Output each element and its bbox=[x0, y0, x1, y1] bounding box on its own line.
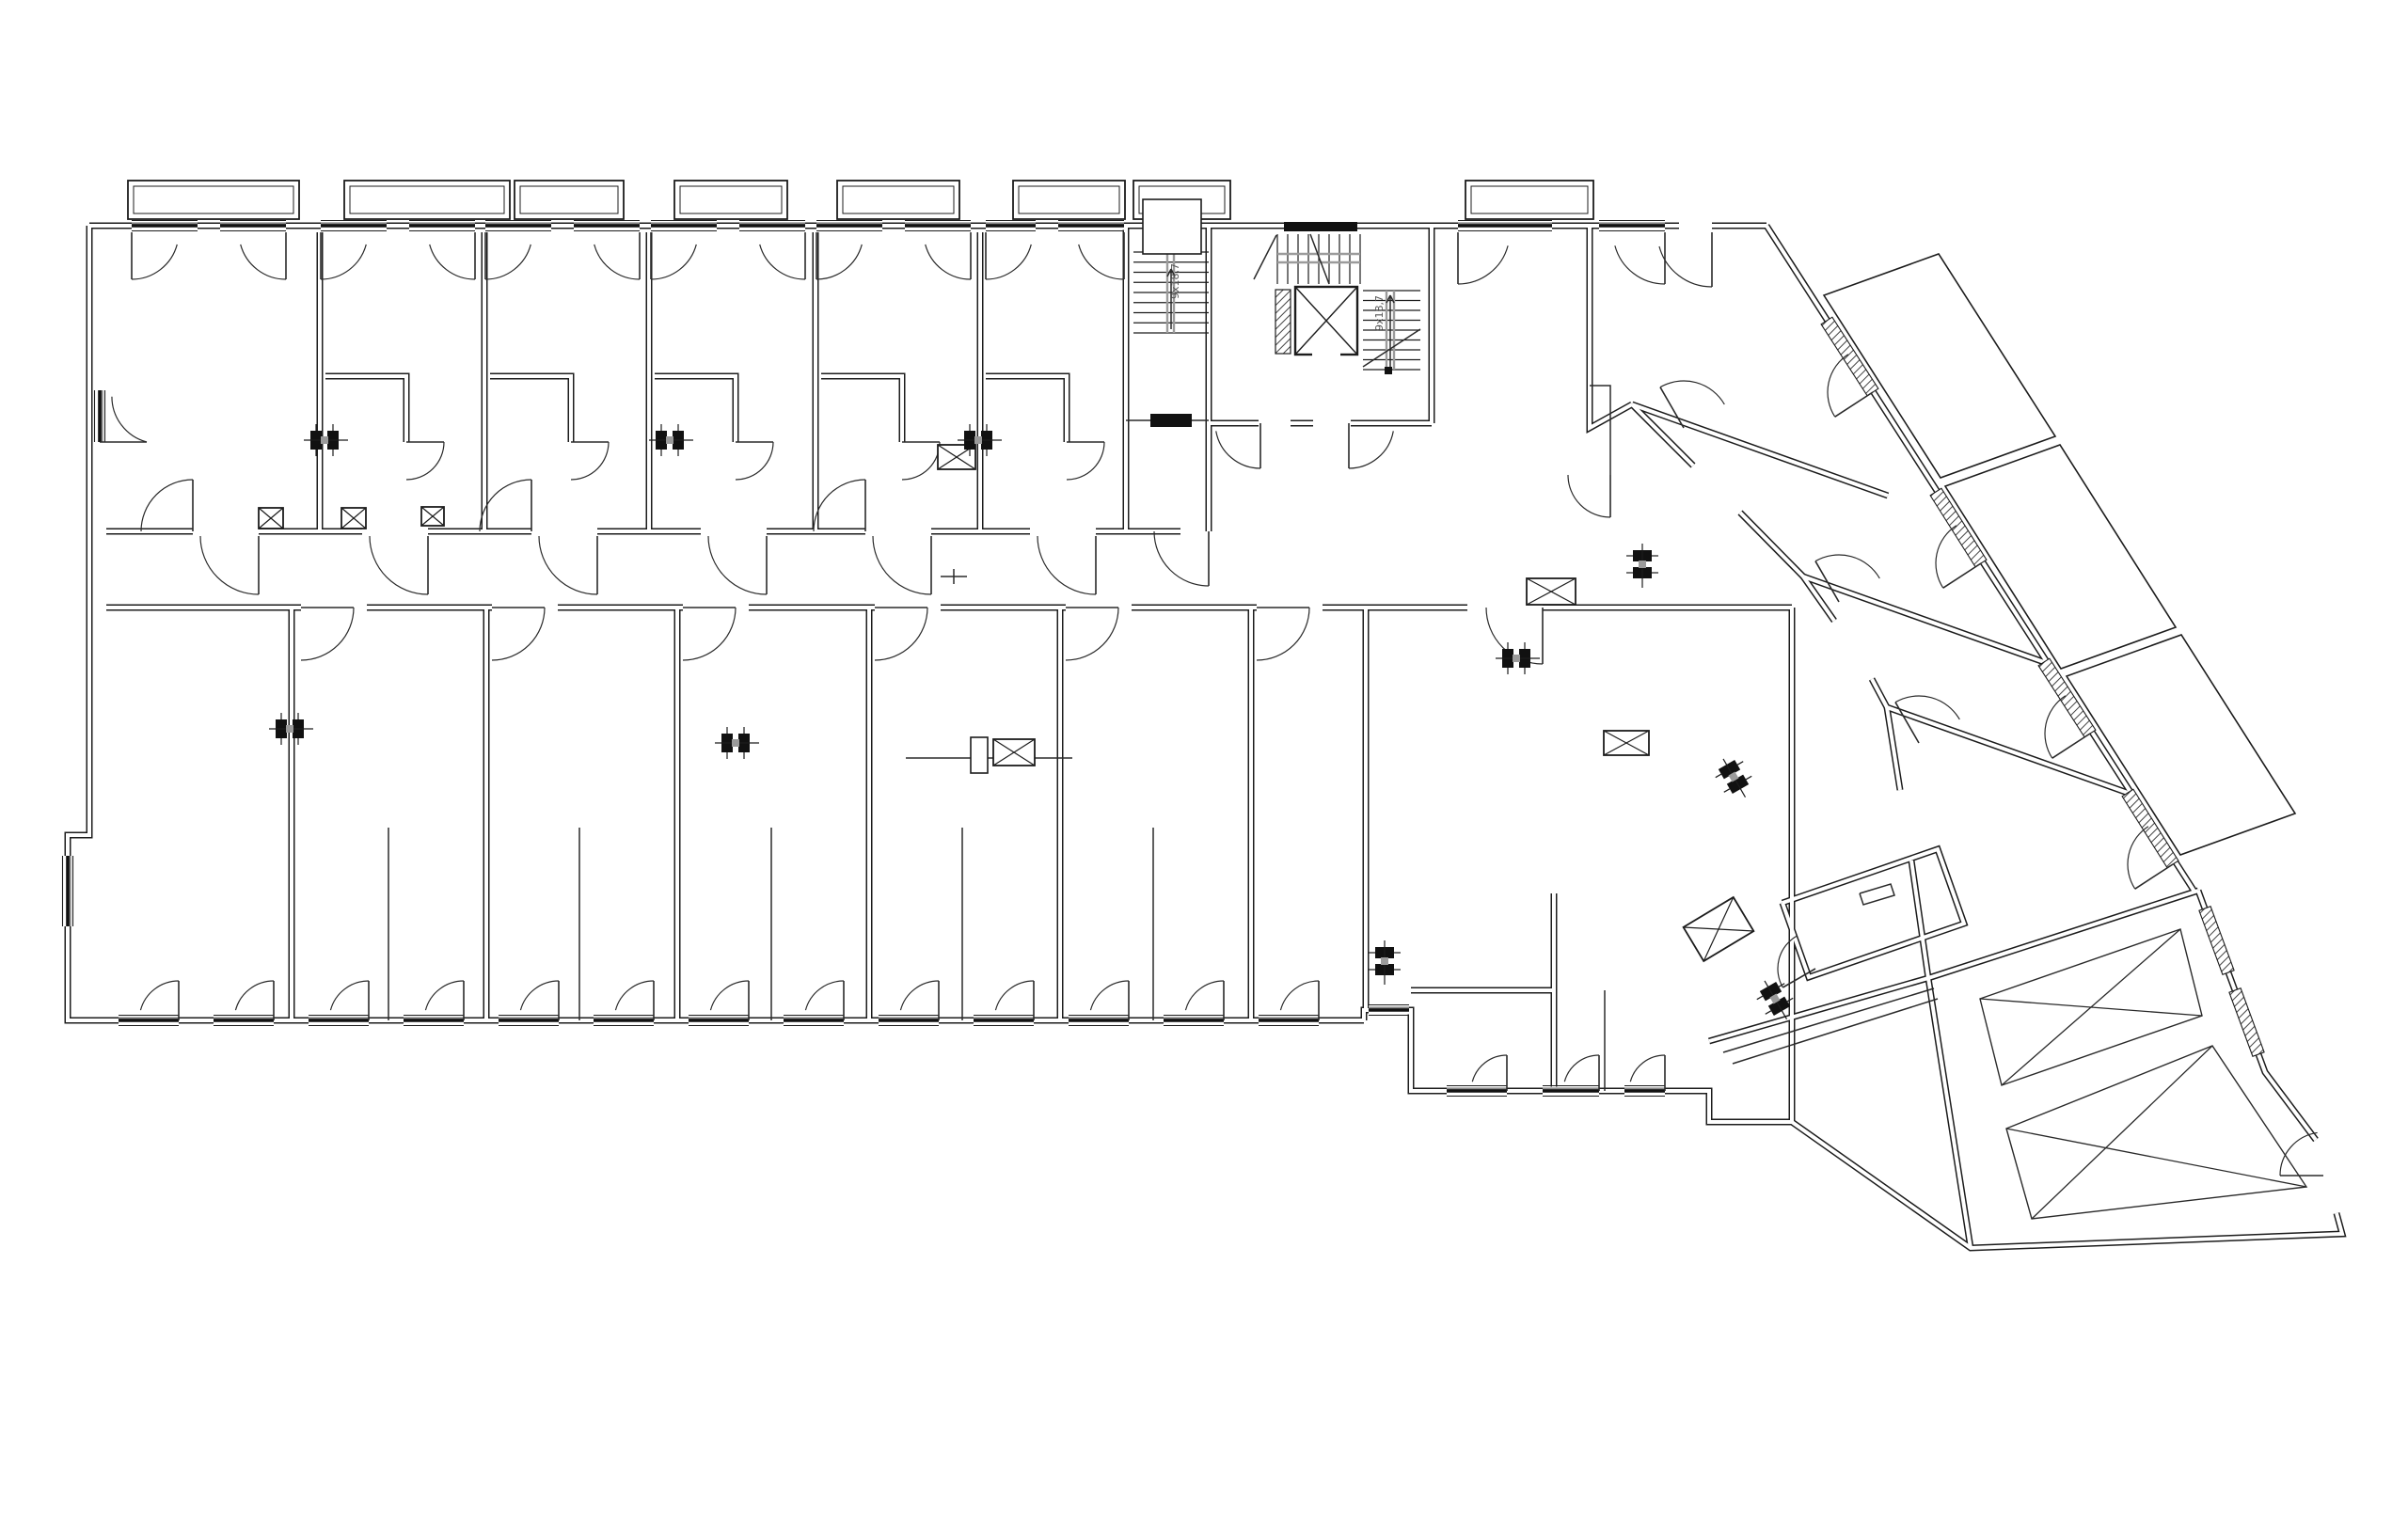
stair-dimension-label: 9x18,7 bbox=[1373, 295, 1386, 331]
vent-shaft bbox=[259, 508, 283, 529]
elevator-shaft bbox=[1275, 287, 1357, 355]
solid-door-panel bbox=[1284, 222, 1357, 231]
window bbox=[816, 221, 882, 231]
window bbox=[95, 390, 105, 442]
window bbox=[651, 221, 717, 231]
window bbox=[1058, 221, 1124, 231]
window bbox=[1447, 1086, 1507, 1097]
window bbox=[879, 1016, 939, 1026]
column bbox=[971, 737, 988, 773]
window bbox=[1624, 1086, 1665, 1097]
window bbox=[905, 221, 971, 231]
window bbox=[132, 221, 198, 231]
vent-shaft bbox=[341, 508, 366, 529]
floor-plan-page: 9x18,79x18,7 bbox=[0, 0, 2408, 1532]
window bbox=[409, 221, 475, 231]
window bbox=[739, 221, 805, 231]
window bbox=[1543, 1086, 1599, 1097]
window bbox=[119, 1016, 179, 1026]
window bbox=[974, 1016, 1034, 1026]
solid-door-panel bbox=[1385, 367, 1392, 374]
floor-plan-drawing: 9x18,79x18,7 bbox=[0, 0, 2408, 1532]
window bbox=[1259, 1016, 1319, 1026]
window bbox=[499, 1016, 559, 1026]
vent-shaft bbox=[1527, 578, 1576, 605]
window bbox=[485, 221, 551, 231]
window bbox=[1458, 221, 1552, 231]
window bbox=[1164, 1016, 1224, 1026]
window bbox=[574, 221, 640, 231]
window bbox=[784, 1016, 844, 1026]
fixture-valve bbox=[974, 436, 982, 444]
column bbox=[1143, 199, 1201, 254]
window bbox=[321, 221, 387, 231]
window bbox=[63, 856, 73, 926]
solid-door-panel bbox=[1150, 414, 1192, 427]
window bbox=[214, 1016, 274, 1026]
window bbox=[1069, 1016, 1129, 1026]
window bbox=[220, 221, 286, 231]
fixture-valve bbox=[286, 725, 293, 733]
window bbox=[309, 1016, 369, 1026]
window bbox=[1599, 221, 1665, 231]
fixture-valve bbox=[666, 436, 673, 444]
vent-shaft bbox=[993, 739, 1035, 766]
elevator-counterweight-strip bbox=[1275, 290, 1291, 354]
fixture-valve bbox=[1513, 655, 1520, 662]
fixture-valve bbox=[732, 739, 739, 747]
fixture-valve bbox=[321, 436, 328, 444]
fixture-valve bbox=[1639, 561, 1646, 568]
vent-shaft bbox=[1604, 731, 1649, 755]
window bbox=[986, 221, 1036, 231]
window bbox=[594, 1016, 654, 1026]
vent-shaft bbox=[421, 507, 444, 526]
window bbox=[1369, 1005, 1409, 1016]
window bbox=[404, 1016, 464, 1026]
fixture-valve bbox=[1381, 957, 1388, 965]
window bbox=[689, 1016, 749, 1026]
stair-dimension-label: 9x18,7 bbox=[1169, 263, 1181, 299]
